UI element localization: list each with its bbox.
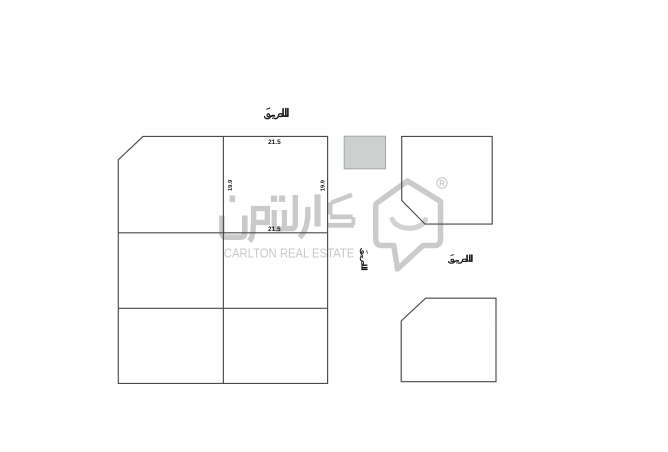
- svg-text:21.5: 21.5: [268, 139, 281, 146]
- svg-text:R: R: [439, 179, 445, 188]
- svg-text:19.9: 19.9: [228, 179, 234, 191]
- svg-text:21.5: 21.5: [268, 226, 281, 233]
- svg-text:19.9: 19.9: [320, 179, 326, 191]
- svg-text:CARLTON REAL ESTATE: CARLTON REAL ESTATE: [224, 246, 355, 261]
